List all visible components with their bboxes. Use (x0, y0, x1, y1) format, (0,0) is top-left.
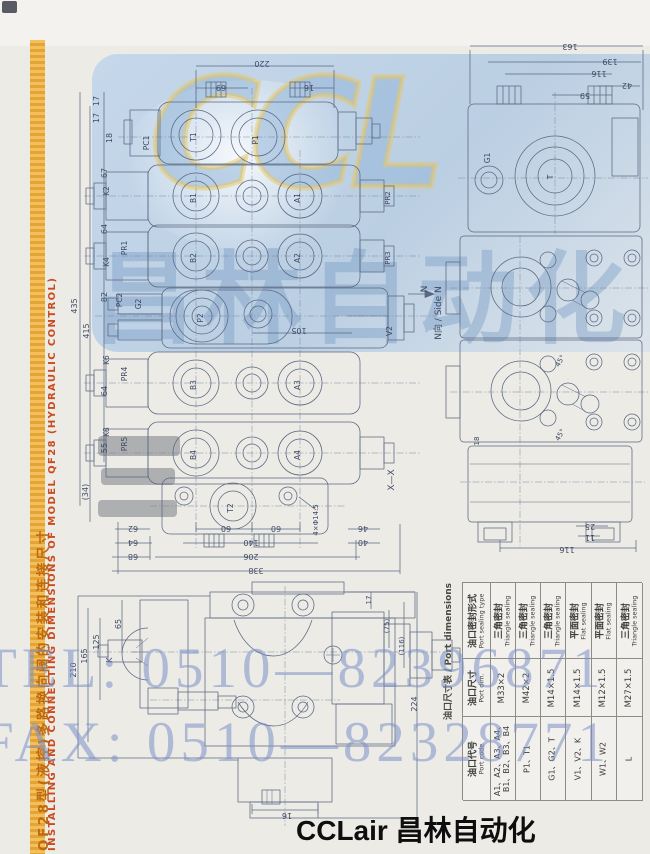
dim-label: 17 (365, 596, 373, 605)
table-cell-text: M14×1.5 (548, 662, 558, 714)
dim-label: 59 (580, 91, 590, 100)
dim-label: 105 (291, 326, 306, 335)
dim-label: 338 (248, 566, 263, 575)
dim-label: 68 (128, 552, 138, 561)
table-cell-text: Port sealing type (478, 586, 485, 656)
table-header-cell: 油口密封形式Port sealing type (463, 583, 491, 659)
table-cell-text: G1、G2、T (549, 720, 558, 798)
dim-label: X—X (387, 469, 397, 490)
table-cell: M27×1.5 (617, 659, 643, 717)
table-cell: M14×1.5 (541, 659, 566, 717)
side-view-drawing (446, 46, 648, 552)
dim-label: 60 (271, 524, 281, 533)
dim-label: PC2 (115, 293, 124, 308)
table-cell-text: Triangle sealing (529, 586, 536, 656)
table-cell-text: V1、V2、K (574, 720, 583, 798)
table-cell: M42×2 (516, 659, 541, 717)
dim-label: 17 (92, 113, 101, 123)
dim-label: 435 (70, 298, 79, 313)
table-cell-text: W1、W2 (600, 720, 609, 798)
dim-label: 18 (105, 133, 114, 143)
table-cell: A1、A2、A3、A4、B1、B2、B3、B4 (491, 717, 516, 801)
table-cell: M12×1.5 (592, 659, 617, 717)
dim-label: 64 (100, 224, 109, 234)
brand-footer: CCLair 昌林自动化 (296, 809, 536, 849)
dim-label: 224 (410, 696, 419, 711)
dim-label: 210 (69, 662, 78, 677)
table-cell-text: Triangle sealing (631, 586, 638, 656)
table-cell-text: B1、B2、B3、B4 (503, 720, 512, 798)
dim-label: 82 (100, 292, 109, 302)
corner-mark (2, 1, 17, 13)
dim-label: B2 (189, 253, 198, 263)
dim-label: 415 (82, 323, 91, 338)
table-cell-text: M14×1.5 (574, 662, 584, 714)
dim-label: G1 (483, 152, 492, 163)
dim-label: (116) (398, 636, 406, 655)
dim-label: 16 (282, 811, 292, 820)
dim-label: 65 (114, 619, 123, 629)
dim-label: 45° (554, 354, 567, 369)
dim-label: B1 (189, 193, 198, 203)
dim-label: K8 (102, 427, 111, 437)
table-cell: V1、V2、K (566, 717, 592, 801)
table-cell: M33×2 (491, 659, 516, 717)
table-cell-text: M33×2 (498, 662, 508, 714)
dim-label: T2 (226, 503, 235, 514)
table-cell: 平面密封Flat sealing (592, 583, 617, 659)
table-cell-text: M42×2 (523, 662, 533, 714)
dim-label: A3 (293, 380, 302, 390)
dim-label: PR4 (120, 367, 129, 382)
dim-label: A1 (293, 193, 302, 203)
dim-label: PR3 (384, 251, 392, 265)
table-cell: M14×1.5 (566, 659, 592, 717)
dim-label: 69 (216, 83, 226, 92)
table-cell-text: M27×1.5 (625, 662, 635, 714)
dim-label: 16 (304, 83, 314, 92)
table-cell-text: Flat sealing (605, 586, 612, 656)
dim-label: 64 (128, 538, 138, 547)
dim-label: 45° (554, 428, 567, 443)
dim-label: PC1 (142, 136, 151, 151)
table-cell: 三角密封Triangle sealing (491, 583, 516, 659)
dim-label: 125 (92, 634, 101, 649)
table-cell: 平面密封Flat sealing (566, 583, 592, 659)
port-dimension-table: 油口密封形式Port sealing type三角密封Triangle seal… (462, 582, 642, 800)
table-cell-text: Triangle sealing (554, 586, 561, 656)
dim-label: 17 (92, 96, 101, 106)
dim-label: P2 (196, 313, 205, 323)
dim-label: 40 (358, 538, 368, 547)
dim-label: 46 (358, 524, 368, 533)
dim-label: N (420, 286, 430, 293)
table-cell: G1、G2、T (541, 717, 566, 801)
table-cell-text: 平面密封 (570, 586, 580, 656)
dim-label: K2 (102, 186, 111, 196)
dim-label: A2 (293, 253, 302, 263)
dim-label: PR2 (384, 191, 392, 205)
table-cell-text: 三角密封 (621, 586, 631, 656)
table-cell: 三角密封Triangle sealing (617, 583, 643, 659)
dim-label: 163 (562, 42, 577, 51)
table-cell-text: M12×1.5 (599, 662, 609, 714)
dim-label: 165 (80, 648, 89, 663)
dim-label: K4 (102, 257, 111, 267)
dim-label: 4×Φ14.5 (312, 504, 320, 535)
catalog-page: CCL 昌林自动化 QF28型(液控)多路换向阀的安装和连接尺寸 INSTALL… (0, 0, 650, 854)
dim-label: 62 (128, 524, 138, 533)
dim-label: 220 (254, 59, 269, 68)
table-cell-text: P1、T1 (524, 720, 533, 798)
table-cell-text: Port code (478, 720, 485, 798)
table-cell-text: 油口代号 (468, 720, 478, 798)
dim-label: 18 (473, 437, 481, 446)
dim-label: PR5 (120, 437, 129, 452)
dim-label: T1 (189, 132, 198, 143)
dim-label: 116 (591, 69, 606, 78)
dim-label: B3 (189, 380, 198, 390)
dim-label: 67 (100, 168, 109, 178)
dim-label: 11 (585, 533, 595, 542)
dim-label: 42 (622, 81, 632, 90)
dim-label: B4 (189, 450, 198, 460)
table-cell: 三角密封Triangle sealing (516, 583, 541, 659)
dim-label: (75) (383, 619, 391, 634)
dim-label: N向 / Side N (432, 286, 444, 340)
port-table-title: 油口尺寸表 / Port dimensions (441, 583, 454, 720)
section-view-drawing (78, 582, 460, 826)
dim-label: 206 (243, 552, 258, 561)
dim-label: T (546, 174, 555, 180)
dim-label: 116 (559, 545, 574, 554)
dim-label: 25 (585, 522, 595, 531)
dim-label: P1 (251, 135, 260, 145)
table-cell: L (617, 717, 643, 801)
dim-label: 55 (100, 443, 109, 453)
dim-label: (34) (81, 484, 90, 500)
dim-label: G2 (134, 298, 143, 309)
dim-label: 60 (221, 524, 231, 533)
table-cell: P1、T1 (516, 717, 541, 801)
table-cell-text: Flat sealing (580, 586, 587, 656)
table-cell: W1、W2 (592, 717, 617, 801)
dim-label: V2 (385, 326, 394, 336)
table-cell-text: Triangle sealing (504, 586, 511, 656)
table-cell-text: 油口密封形式 (468, 586, 478, 656)
dim-label: K6 (102, 355, 111, 365)
dim-label: 140 (243, 538, 258, 547)
table-cell: 三角密封Triangle sealing (541, 583, 566, 659)
table-header-cell: 油口代号Port code (463, 717, 491, 801)
dim-label: 64 (100, 386, 109, 396)
table-header-cell: 油口尺寸Port dim. (463, 659, 491, 717)
dim-label: A4 (293, 450, 302, 460)
dim-label: 139 (602, 57, 617, 66)
dim-label: PR1 (120, 241, 129, 256)
table-cell-text: Port dim. (478, 662, 485, 714)
table-cell-text: 油口尺寸 (468, 662, 478, 714)
table-cell-text: L (625, 720, 634, 798)
